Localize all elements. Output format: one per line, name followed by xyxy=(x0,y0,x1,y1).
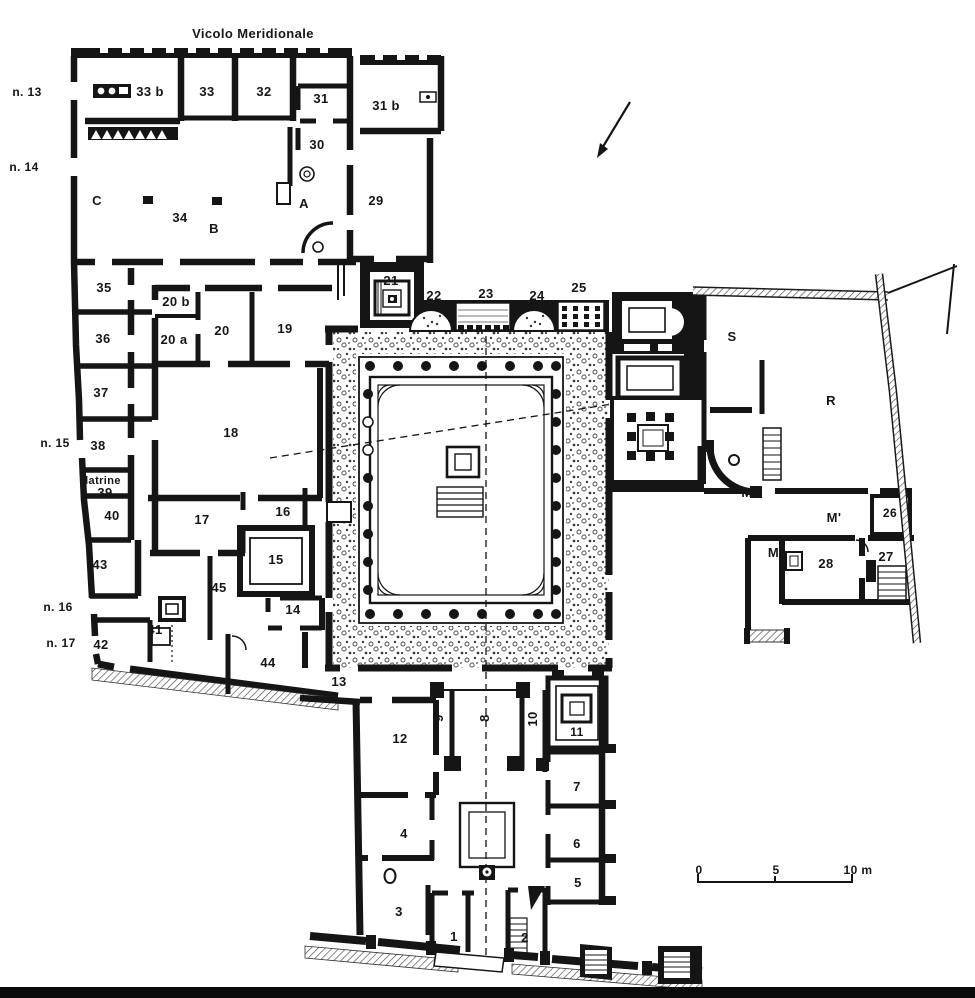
door-arc-44 xyxy=(232,636,246,650)
label-scale0: 0 xyxy=(695,863,702,877)
label-r15: 15 xyxy=(268,552,283,567)
shop-counter-33b xyxy=(93,84,131,98)
label-r20: 20 xyxy=(214,323,229,338)
north-block-walls xyxy=(71,48,441,263)
label-r9: 9 xyxy=(431,714,446,722)
label-r5: 5 xyxy=(574,875,582,890)
label-n17: n. 17 xyxy=(46,636,75,650)
south-house xyxy=(305,670,702,990)
label-rM2: M'' xyxy=(768,545,786,560)
label-r42: 42 xyxy=(93,637,108,652)
restored-column-1 xyxy=(363,417,373,427)
label-scale10: 10 m xyxy=(844,863,873,877)
label-r30: 30 xyxy=(309,137,324,152)
feature-23 xyxy=(456,303,510,330)
orientation-arrow xyxy=(597,102,630,158)
stairs-R xyxy=(763,428,781,480)
label-r27: 27 xyxy=(878,549,893,564)
corridor-to-34 xyxy=(338,262,344,300)
label-scale5: 5 xyxy=(772,863,779,877)
base-b2 xyxy=(212,197,222,205)
label-r29: 29 xyxy=(368,193,383,208)
base-b1 xyxy=(143,196,153,204)
tetrastyle-court xyxy=(612,398,704,482)
label-r39: 39 xyxy=(97,485,112,500)
label-r40: 40 xyxy=(104,508,119,523)
label-r18: 18 xyxy=(223,425,238,440)
label-rA: A xyxy=(299,196,309,211)
bath-complex xyxy=(609,264,957,644)
corridor-13-south-wall xyxy=(300,698,360,702)
west-facade xyxy=(74,262,98,664)
label-r23: 23 xyxy=(478,286,493,301)
door-wedge xyxy=(528,886,545,910)
label-r34: 34 xyxy=(172,210,188,225)
west-niche xyxy=(327,502,351,522)
label-n13: n. 13 xyxy=(12,85,41,99)
label-r26: 26 xyxy=(883,506,897,520)
label-r36: 36 xyxy=(95,331,110,346)
label-r7: 7 xyxy=(573,779,581,794)
label-r28: 28 xyxy=(818,556,833,571)
external-stair-b xyxy=(658,946,702,984)
label-r8: 8 xyxy=(477,714,492,722)
house-west-wall xyxy=(356,700,360,935)
label-street-name: Vicolo Meridionale xyxy=(192,26,314,41)
label-r14: 14 xyxy=(285,602,301,617)
restored-column-2 xyxy=(363,445,373,455)
label-rS: S xyxy=(727,329,736,344)
label-r16: 16 xyxy=(275,504,290,519)
floor-plan-svg: Vicolo Meridionalen. 13n. 14n. 15n. 16n.… xyxy=(0,0,975,998)
pillar-A xyxy=(277,183,290,204)
label-r12: 12 xyxy=(392,731,407,746)
label-r17: 17 xyxy=(194,512,209,527)
label-n16: n. 16 xyxy=(43,600,72,614)
label-r43: 43 xyxy=(92,557,107,572)
impluvium xyxy=(460,803,514,880)
label-r2: 2 xyxy=(521,930,529,945)
jar-room-3 xyxy=(385,869,396,883)
walls-room-4 xyxy=(358,795,436,858)
stairs-33b xyxy=(88,127,178,140)
east-wall-stubs xyxy=(604,744,616,905)
label-rR: R xyxy=(826,393,836,408)
label-r1: 1 xyxy=(450,929,458,944)
label-r6: 6 xyxy=(573,836,581,851)
label-r44: 44 xyxy=(260,655,276,670)
fountain-arc xyxy=(303,223,333,253)
label-r25: 25 xyxy=(571,280,586,295)
well-head-inner xyxy=(304,171,310,177)
label-r37: 37 xyxy=(93,385,108,400)
walls-8-9-10 xyxy=(452,690,545,772)
label-r33b: 33 b xyxy=(136,84,164,99)
label-n14: n. 14 xyxy=(9,160,38,174)
label-r13: 13 xyxy=(331,674,346,689)
label-r45: 45 xyxy=(211,580,226,595)
label-r35: 35 xyxy=(96,280,111,295)
arrow-head xyxy=(597,143,608,158)
laconicum-basin xyxy=(729,455,739,465)
label-rB: B xyxy=(209,221,219,236)
colonnade-floor xyxy=(356,354,566,626)
label-r32: 32 xyxy=(256,84,271,99)
room-2-stairs xyxy=(508,886,545,958)
label-r31: 31 xyxy=(313,91,328,106)
label-r3: 3 xyxy=(395,904,403,919)
window-31b xyxy=(420,92,436,102)
threshold-M2 xyxy=(744,628,790,644)
label-r33: 33 xyxy=(199,84,214,99)
mosaic-25 xyxy=(558,302,604,330)
label-r19: 19 xyxy=(277,321,292,336)
thin-wall-extension xyxy=(888,264,957,334)
floor-plan-page: Vicolo Meridionalen. 13n. 14n. 15n. 16n.… xyxy=(0,0,975,998)
label-rC: C xyxy=(92,193,102,208)
label-r31b: 31 b xyxy=(372,98,400,113)
label-r21: 21 xyxy=(383,273,398,288)
label-n15: n. 15 xyxy=(40,436,69,450)
label-r38: 38 xyxy=(90,438,105,453)
strip-east-wall xyxy=(131,268,138,596)
fountain-basin xyxy=(313,242,323,252)
label-r11: 11 xyxy=(570,725,584,739)
label-r10: 10 xyxy=(525,711,540,726)
street-facade-north xyxy=(71,53,441,60)
label-rM: M xyxy=(741,485,752,500)
label-rM1: M' xyxy=(827,510,842,525)
label-r41: 41 xyxy=(147,622,162,637)
feature-28 xyxy=(786,552,802,570)
well-head-outer xyxy=(300,167,314,181)
wall-31b-29 xyxy=(350,56,441,263)
page-bottom-border xyxy=(0,987,975,998)
label-r20a: 20 a xyxy=(161,332,188,347)
label-r20b: 20 b xyxy=(162,294,190,309)
external-stair-a xyxy=(580,944,612,980)
label-r4: 4 xyxy=(400,826,408,841)
label-r22: 22 xyxy=(426,288,441,303)
label-r24: 24 xyxy=(529,288,545,303)
